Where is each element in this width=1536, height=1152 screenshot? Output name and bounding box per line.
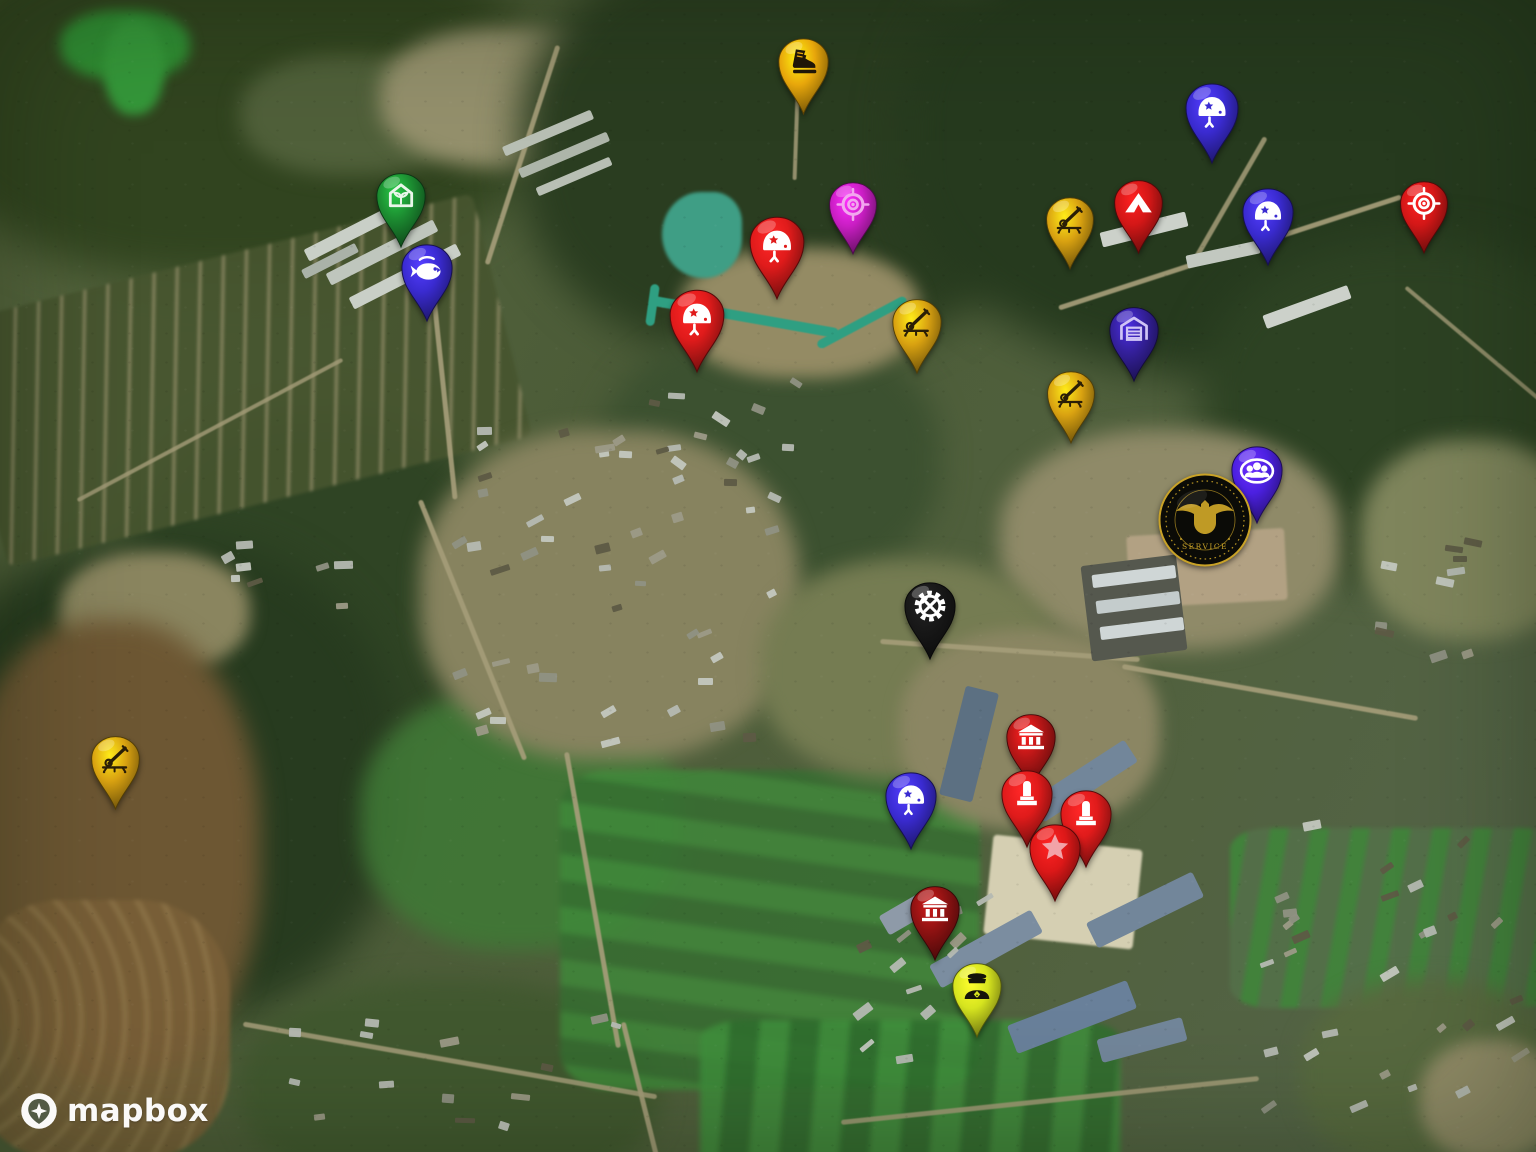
helmet-marker-red-2[interactable] bbox=[666, 286, 728, 378]
aa-gun-marker-4[interactable] bbox=[88, 733, 143, 815]
helmet-marker-blue-2[interactable] bbox=[1239, 185, 1297, 271]
mapbox-logo-icon bbox=[20, 1092, 58, 1130]
fishery-marker[interactable] bbox=[398, 241, 456, 327]
mapbox-logo-text: mapbox bbox=[67, 1093, 209, 1129]
target-marker-red[interactable] bbox=[1397, 178, 1451, 259]
mapbox-attribution[interactable]: mapbox bbox=[20, 1092, 209, 1130]
star-marker[interactable] bbox=[1026, 821, 1084, 907]
industry-marker[interactable] bbox=[901, 579, 959, 665]
intelligence-service-seal[interactable]: SERVICE bbox=[1158, 473, 1252, 571]
helmet-marker-blue-1[interactable] bbox=[1182, 80, 1242, 169]
boot-marker[interactable] bbox=[775, 35, 832, 120]
aa-gun-marker-3[interactable] bbox=[1044, 368, 1098, 449]
officer-marker[interactable] bbox=[949, 960, 1005, 1043]
target-marker-magenta[interactable] bbox=[826, 179, 880, 260]
helmet-marker-blue-3[interactable] bbox=[882, 769, 940, 855]
garage-marker[interactable] bbox=[1106, 304, 1162, 387]
helmet-marker-red-1[interactable] bbox=[746, 213, 808, 305]
map-canvas[interactable]: SERVICE bbox=[0, 0, 1536, 1152]
svg-text:SERVICE: SERVICE bbox=[1182, 542, 1228, 551]
tent-marker[interactable] bbox=[1111, 177, 1166, 259]
aa-gun-marker-1[interactable] bbox=[889, 296, 945, 379]
marker-layer: SERVICE bbox=[0, 0, 1536, 1152]
bank-marker-2[interactable] bbox=[907, 883, 963, 966]
aa-gun-marker-2[interactable] bbox=[1043, 194, 1097, 275]
